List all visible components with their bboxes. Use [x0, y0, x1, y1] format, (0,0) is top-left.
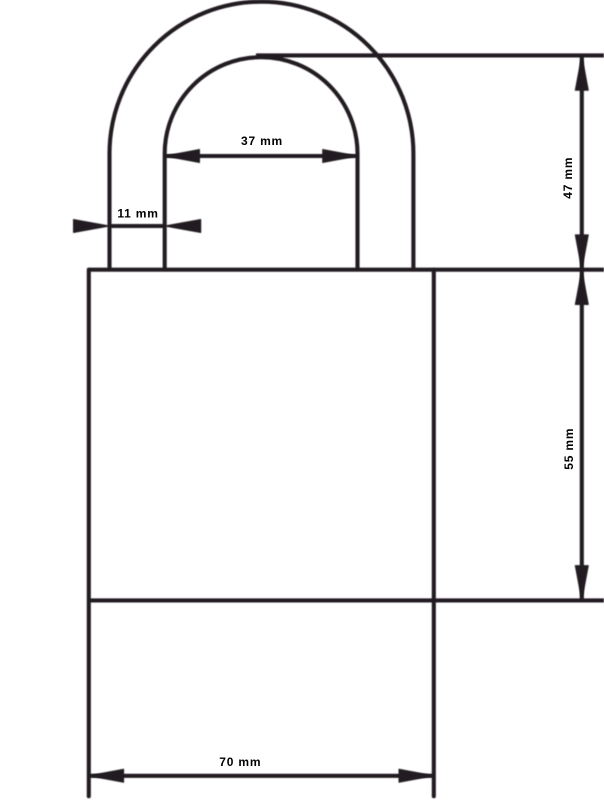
svg-text:11 mm: 11 mm — [117, 207, 158, 221]
svg-text:47 mm: 47 mm — [561, 157, 575, 199]
svg-text:55 mm: 55 mm — [562, 428, 576, 470]
svg-text:70 mm: 70 mm — [219, 755, 261, 769]
svg-text:37 mm: 37 mm — [241, 134, 283, 148]
